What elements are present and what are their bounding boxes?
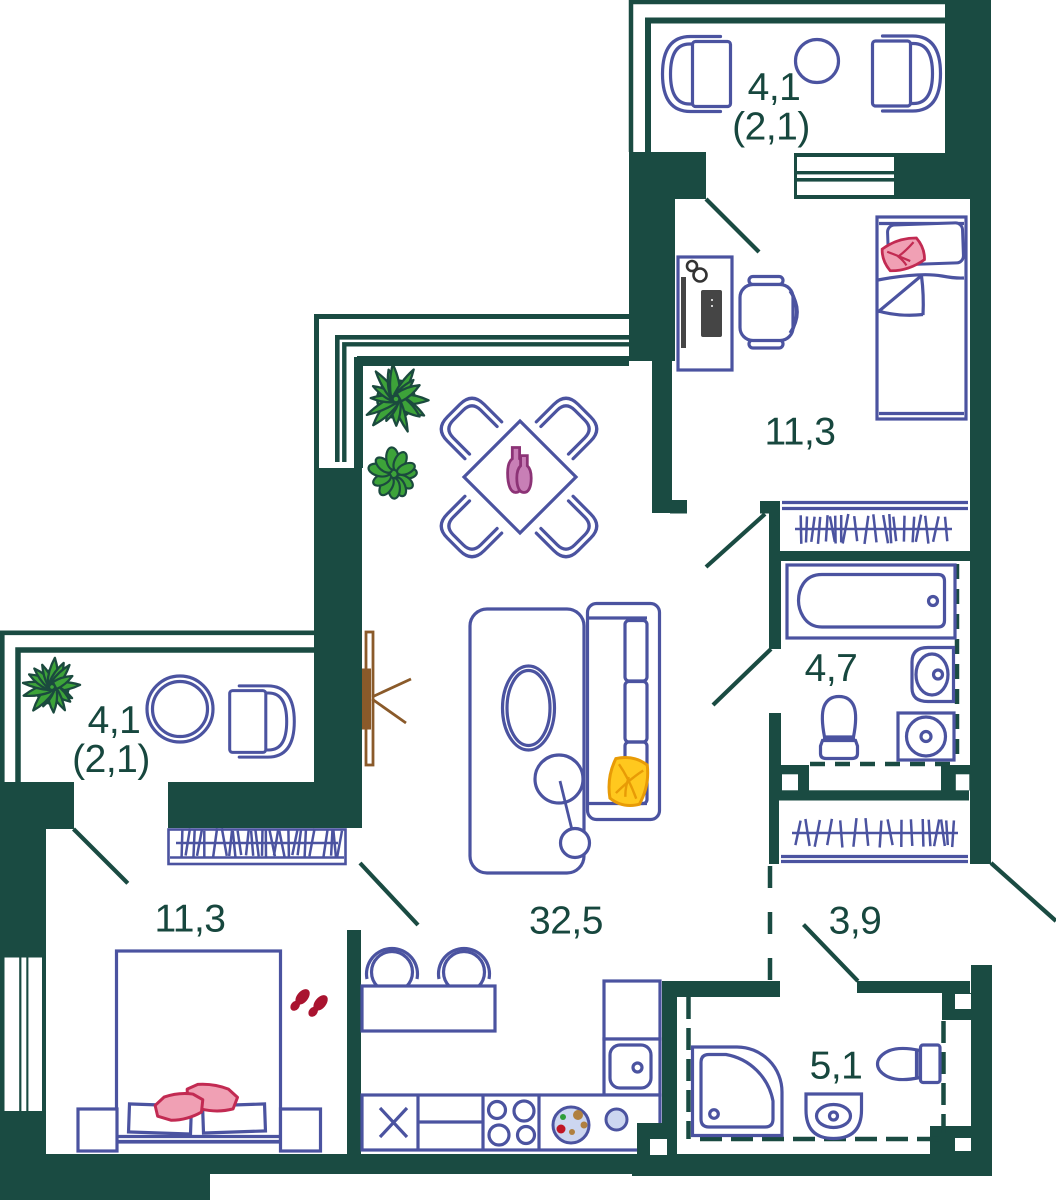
svg-text:3,9: 3,9 bbox=[829, 900, 882, 943]
svg-text:4,7: 4,7 bbox=[805, 647, 858, 690]
svg-text:(2,1): (2,1) bbox=[72, 738, 150, 781]
svg-text:11,3: 11,3 bbox=[154, 898, 225, 941]
svg-text:4,1: 4,1 bbox=[88, 699, 141, 742]
svg-text:4,1: 4,1 bbox=[748, 66, 801, 109]
svg-text:5,1: 5,1 bbox=[810, 1045, 863, 1088]
svg-text:32,5: 32,5 bbox=[529, 900, 603, 943]
svg-text:(2,1): (2,1) bbox=[732, 106, 810, 149]
svg-text:11,3: 11,3 bbox=[764, 411, 835, 454]
